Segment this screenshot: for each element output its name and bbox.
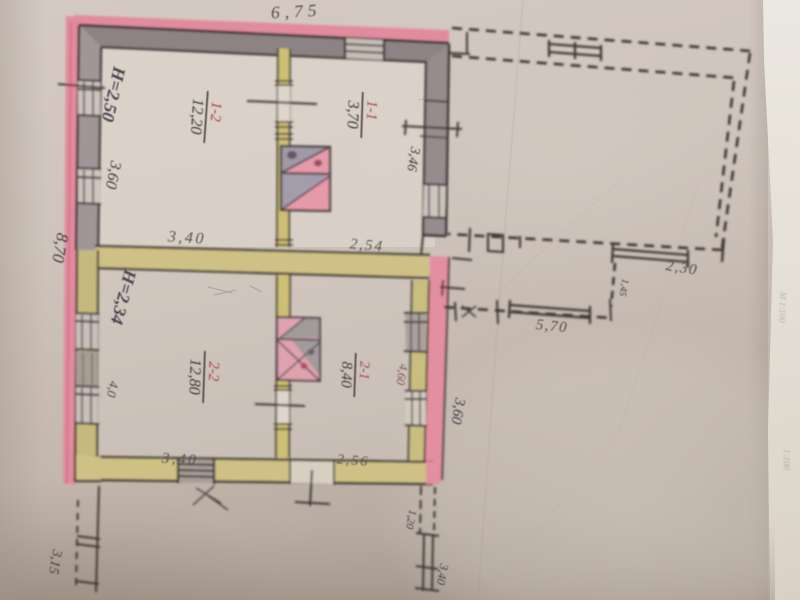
svg-text:2-2: 2-2: [205, 361, 222, 382]
svg-text:2,54: 2,54: [349, 236, 385, 255]
svg-text:3,40: 3,40: [160, 450, 198, 469]
svg-text:М 1:100: М 1:100: [777, 291, 788, 324]
svg-text:5,70: 5,70: [535, 317, 569, 336]
svg-text:1-1: 1-1: [363, 100, 380, 121]
svg-text:3,70: 3,70: [344, 99, 362, 129]
svg-text:3,40: 3,40: [166, 228, 206, 248]
svg-text:1:100: 1:100: [782, 449, 793, 471]
svg-text:1-2: 1-2: [207, 101, 224, 123]
svg-text:12,20: 12,20: [187, 98, 206, 135]
svg-text:8,40: 8,40: [338, 361, 355, 388]
svg-text:2,56: 2,56: [336, 452, 370, 470]
svg-text:2-1: 2-1: [356, 361, 372, 380]
svg-text:12,80: 12,80: [185, 358, 203, 395]
svg-text:6,75: 6,75: [270, 0, 322, 22]
